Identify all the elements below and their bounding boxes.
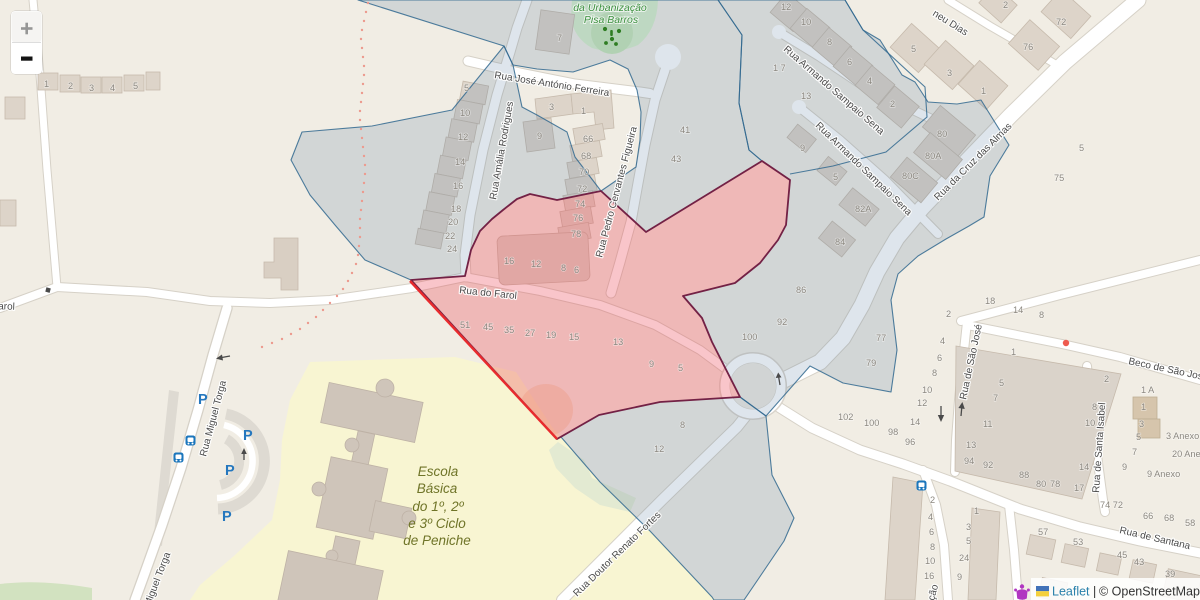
svg-text:do 1º, 2º: do 1º, 2º bbox=[412, 499, 464, 514]
svg-text:41: 41 bbox=[680, 125, 690, 135]
svg-text:80: 80 bbox=[937, 129, 947, 139]
svg-text:92: 92 bbox=[983, 460, 993, 470]
svg-text:© OpenStreetMap: © OpenStreetMap bbox=[1099, 585, 1200, 599]
svg-text:51: 51 bbox=[460, 320, 470, 330]
svg-text:de Peniche: de Peniche bbox=[403, 533, 471, 548]
svg-text:8: 8 bbox=[827, 37, 832, 47]
svg-text:45: 45 bbox=[483, 322, 493, 332]
svg-text:P: P bbox=[222, 509, 232, 525]
svg-text:43: 43 bbox=[1134, 557, 1144, 567]
svg-text:3: 3 bbox=[966, 522, 971, 532]
svg-text:9 Anexo: 9 Anexo bbox=[1147, 469, 1180, 479]
svg-text:5: 5 bbox=[1079, 143, 1084, 153]
svg-text:8: 8 bbox=[1092, 402, 1097, 412]
svg-text:5: 5 bbox=[833, 172, 838, 182]
svg-text:14: 14 bbox=[455, 157, 465, 167]
svg-text:3: 3 bbox=[549, 102, 554, 112]
svg-text:100: 100 bbox=[864, 418, 879, 428]
svg-text:P: P bbox=[225, 463, 235, 479]
svg-text:76: 76 bbox=[573, 213, 583, 223]
svg-text:8: 8 bbox=[932, 368, 937, 378]
svg-text:1: 1 bbox=[44, 79, 49, 89]
svg-text:1: 1 bbox=[1011, 347, 1016, 357]
svg-text:8: 8 bbox=[1039, 310, 1044, 320]
svg-text:14: 14 bbox=[1013, 305, 1023, 315]
svg-text:14: 14 bbox=[1079, 462, 1089, 472]
svg-text:Leaflet: Leaflet bbox=[1052, 585, 1090, 599]
svg-text:80C: 80C bbox=[902, 171, 919, 181]
svg-text:53: 53 bbox=[1073, 537, 1083, 547]
svg-text:5: 5 bbox=[999, 378, 1004, 388]
svg-text:4: 4 bbox=[110, 83, 115, 93]
svg-text:68: 68 bbox=[1164, 513, 1174, 523]
svg-text:5: 5 bbox=[911, 44, 916, 54]
svg-text:1: 1 bbox=[974, 506, 979, 516]
svg-text:5: 5 bbox=[464, 83, 469, 93]
svg-text:9: 9 bbox=[537, 131, 542, 141]
svg-text:5: 5 bbox=[678, 363, 683, 373]
svg-text:6: 6 bbox=[929, 527, 934, 537]
svg-text:9: 9 bbox=[800, 143, 805, 153]
svg-text:15: 15 bbox=[569, 332, 579, 342]
svg-text:6: 6 bbox=[574, 265, 579, 275]
svg-text:88: 88 bbox=[1019, 470, 1029, 480]
svg-text:94: 94 bbox=[964, 456, 974, 466]
svg-text:Básica: Básica bbox=[417, 481, 458, 496]
svg-text:12: 12 bbox=[917, 398, 927, 408]
svg-text:77: 77 bbox=[876, 333, 886, 343]
svg-text:66: 66 bbox=[1143, 511, 1153, 521]
svg-text:11: 11 bbox=[983, 419, 993, 429]
svg-text:9: 9 bbox=[1122, 462, 1127, 472]
svg-text:4: 4 bbox=[867, 76, 872, 86]
svg-text:9: 9 bbox=[957, 572, 962, 582]
svg-text:70: 70 bbox=[579, 167, 589, 177]
svg-text:2: 2 bbox=[1104, 374, 1109, 384]
svg-text:100: 100 bbox=[742, 332, 757, 342]
svg-text:8: 8 bbox=[680, 420, 685, 430]
svg-text:10: 10 bbox=[801, 17, 811, 27]
svg-text:12: 12 bbox=[531, 259, 541, 269]
svg-text:82A: 82A bbox=[855, 204, 872, 214]
svg-text:27: 27 bbox=[525, 328, 535, 338]
svg-text:1: 1 bbox=[581, 106, 586, 116]
svg-text:5: 5 bbox=[966, 536, 971, 546]
svg-text:20: 20 bbox=[448, 217, 458, 227]
svg-text:58: 58 bbox=[1185, 518, 1195, 528]
svg-text:Farol: Farol bbox=[0, 301, 15, 313]
svg-text:2: 2 bbox=[890, 99, 895, 109]
svg-text:da Urbanização: da Urbanização bbox=[573, 2, 647, 14]
svg-text:6: 6 bbox=[937, 353, 942, 363]
svg-text:2: 2 bbox=[1003, 0, 1008, 10]
svg-text:P: P bbox=[198, 392, 208, 408]
svg-text:80: 80 bbox=[1036, 479, 1046, 489]
svg-text:22: 22 bbox=[445, 231, 455, 241]
svg-text:13: 13 bbox=[966, 440, 976, 450]
svg-text:74 72: 74 72 bbox=[1100, 500, 1123, 510]
svg-text:74: 74 bbox=[575, 199, 585, 209]
svg-text:39: 39 bbox=[1165, 569, 1175, 579]
svg-text:4: 4 bbox=[940, 336, 945, 346]
svg-text:Pisa Barros: Pisa Barros bbox=[584, 14, 639, 26]
svg-text:6: 6 bbox=[847, 57, 852, 67]
svg-text:1 7: 1 7 bbox=[773, 63, 786, 73]
svg-text:12: 12 bbox=[654, 444, 664, 454]
svg-text:13: 13 bbox=[801, 91, 811, 101]
svg-text:19: 19 bbox=[546, 330, 556, 340]
svg-text:18: 18 bbox=[985, 296, 995, 306]
svg-text:3: 3 bbox=[947, 68, 952, 78]
svg-text:|: | bbox=[1093, 585, 1096, 599]
svg-text:12: 12 bbox=[781, 2, 791, 12]
svg-text:66: 66 bbox=[583, 134, 593, 144]
svg-text:1: 1 bbox=[981, 86, 986, 96]
svg-text:72: 72 bbox=[1056, 17, 1066, 27]
svg-text:Escola: Escola bbox=[418, 464, 459, 479]
svg-text:8: 8 bbox=[561, 263, 566, 273]
svg-text:20 Anex: 20 Anex bbox=[1172, 449, 1200, 459]
svg-text:16: 16 bbox=[924, 571, 934, 581]
svg-text:79: 79 bbox=[866, 358, 876, 368]
svg-text:78: 78 bbox=[571, 229, 581, 239]
svg-text:24: 24 bbox=[447, 244, 457, 254]
svg-text:7: 7 bbox=[993, 393, 998, 403]
svg-text:13: 13 bbox=[613, 337, 623, 347]
svg-text:7: 7 bbox=[1132, 447, 1137, 457]
svg-text:3: 3 bbox=[89, 83, 94, 93]
svg-text:18: 18 bbox=[451, 204, 461, 214]
svg-text:45: 45 bbox=[1117, 550, 1127, 560]
svg-text:10: 10 bbox=[460, 108, 470, 118]
svg-text:43: 43 bbox=[671, 154, 681, 164]
svg-text:96: 96 bbox=[905, 437, 915, 447]
svg-text:2: 2 bbox=[930, 495, 935, 505]
svg-text:16: 16 bbox=[504, 256, 514, 266]
svg-text:2: 2 bbox=[946, 309, 951, 319]
svg-text:102: 102 bbox=[838, 412, 853, 422]
svg-text:5: 5 bbox=[1136, 432, 1141, 442]
svg-text:10: 10 bbox=[1085, 418, 1095, 428]
svg-text:12: 12 bbox=[458, 132, 468, 142]
svg-text:2: 2 bbox=[68, 81, 73, 91]
svg-text:e 3º Ciclo: e 3º Ciclo bbox=[408, 516, 466, 531]
svg-text:5: 5 bbox=[133, 81, 138, 91]
svg-text:3: 3 bbox=[1139, 419, 1144, 429]
svg-text:7: 7 bbox=[557, 33, 562, 43]
svg-text:78: 78 bbox=[1050, 479, 1060, 489]
svg-text:92: 92 bbox=[777, 317, 787, 327]
svg-text:10: 10 bbox=[922, 385, 932, 395]
svg-text:76: 76 bbox=[1023, 42, 1033, 52]
svg-text:16: 16 bbox=[453, 181, 463, 191]
svg-text:80A: 80A bbox=[925, 151, 942, 161]
svg-text:3 Anexo: 3 Anexo bbox=[1166, 431, 1199, 441]
svg-text:14: 14 bbox=[910, 417, 920, 427]
svg-text:4: 4 bbox=[928, 512, 933, 522]
svg-text:84: 84 bbox=[835, 237, 845, 247]
svg-text:1 A: 1 A bbox=[1141, 385, 1155, 395]
svg-text:P: P bbox=[243, 428, 253, 444]
svg-text:57: 57 bbox=[1038, 527, 1048, 537]
svg-text:35: 35 bbox=[504, 325, 514, 335]
svg-text:24: 24 bbox=[959, 553, 969, 563]
svg-text:17: 17 bbox=[1074, 483, 1084, 493]
svg-text:72: 72 bbox=[577, 184, 587, 194]
svg-text:98: 98 bbox=[888, 427, 898, 437]
svg-text:10: 10 bbox=[925, 556, 935, 566]
svg-text:8: 8 bbox=[930, 542, 935, 552]
svg-text:68: 68 bbox=[581, 151, 591, 161]
svg-text:86: 86 bbox=[796, 285, 806, 295]
svg-text:75: 75 bbox=[1054, 173, 1064, 183]
svg-text:9: 9 bbox=[649, 359, 654, 369]
svg-text:1: 1 bbox=[1141, 402, 1146, 412]
